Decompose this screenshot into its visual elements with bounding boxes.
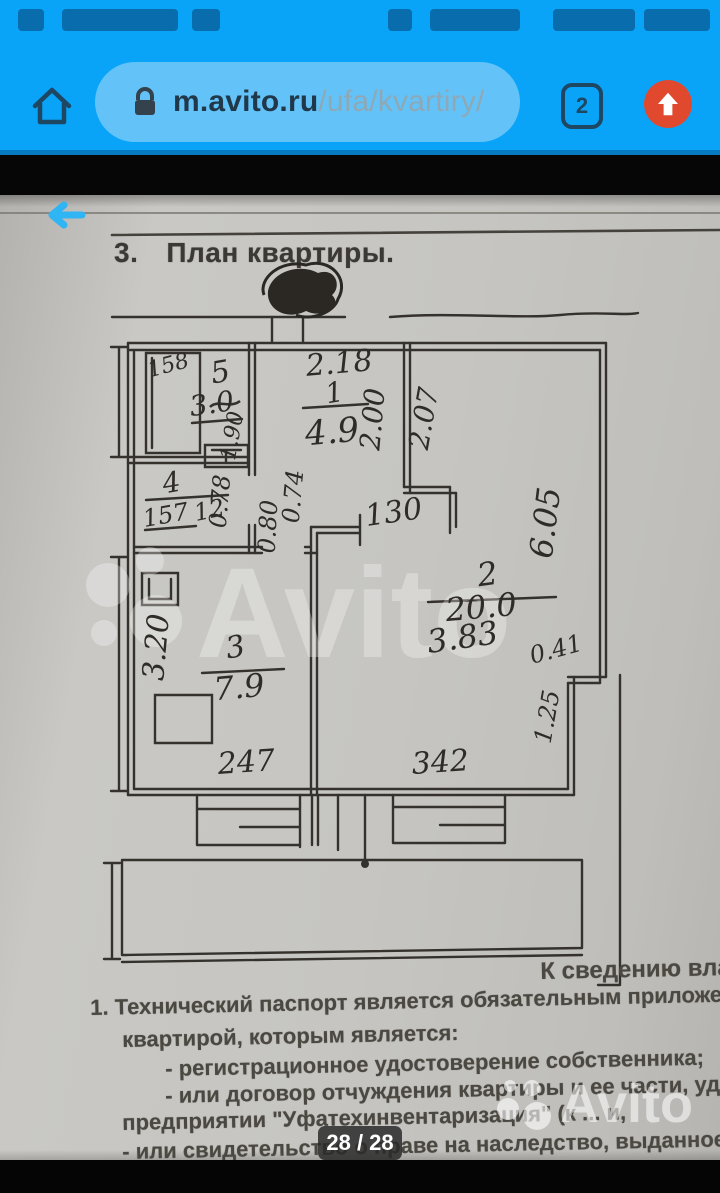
plan-dim-4.9: 4.9	[302, 410, 360, 455]
browser-toolbar: m.avito.ru/ufa/kvartiry/ 2	[0, 40, 720, 155]
avito-logo-icon	[492, 1075, 554, 1133]
plan-dim-0.78: 0.78	[204, 473, 237, 529]
upload-button[interactable]	[644, 80, 692, 128]
signal-wifi-icons	[430, 9, 520, 31]
watermark-bottom: Avito	[492, 1073, 693, 1135]
url-host: m.avito.ru	[173, 85, 318, 118]
battery-icon	[553, 9, 635, 31]
plan-dim-1.25: 1.25	[529, 688, 566, 745]
status-bar	[0, 0, 720, 40]
letterbox-top	[0, 155, 720, 195]
clock-digits	[644, 9, 710, 31]
plan-dim-2.07: 2.07	[402, 385, 446, 453]
plan-dim-6.05: 6.05	[522, 485, 568, 560]
page-indicator-badge: 28 / 28	[318, 1126, 402, 1160]
side-note: К сведению вла	[540, 954, 720, 986]
status-icon-cluster-left	[62, 9, 178, 31]
plan-dim-3.20: 3.20	[136, 612, 177, 682]
tab-count: 2	[576, 93, 588, 119]
alarm-icon	[388, 9, 412, 31]
home-button[interactable]	[28, 82, 76, 130]
plan-dim-7.9: 7.9	[212, 666, 266, 708]
phone-screen: m.avito.ru/ufa/kvartiry/ 2 3.План кварти…	[0, 0, 720, 1193]
home-icon	[28, 82, 76, 130]
url-path: /ufa/kvartiry/	[318, 85, 484, 118]
plan-dim-342: 342	[411, 743, 471, 782]
plan-dim-130: 130	[363, 491, 425, 534]
plan-dim-0.74: 0.74	[277, 468, 310, 524]
plan-dim-2.00: 2.00	[353, 387, 391, 453]
status-icon	[192, 9, 220, 31]
plan-dim-4: 4	[159, 465, 183, 501]
url-text: m.avito.ru/ufa/kvartiry/	[173, 85, 485, 119]
lock-icon	[133, 87, 157, 117]
watermark-text-bottom: Avito	[560, 1073, 693, 1135]
plan-dim-0.41: 0.41	[526, 629, 585, 670]
tab-switcher-button[interactable]: 2	[561, 83, 603, 129]
arrow-up-icon	[653, 89, 683, 119]
back-arrow-icon[interactable]	[42, 200, 88, 230]
page-indicator-text: 28 / 28	[326, 1130, 393, 1156]
floor-plan-photo[interactable]: 3.План квартиры.	[0, 195, 720, 1160]
address-bar[interactable]: m.avito.ru/ufa/kvartiry/	[95, 62, 520, 142]
status-icon	[18, 9, 44, 31]
letterbox-bottom	[0, 1160, 720, 1193]
plan-dim-247: 247	[216, 743, 277, 782]
